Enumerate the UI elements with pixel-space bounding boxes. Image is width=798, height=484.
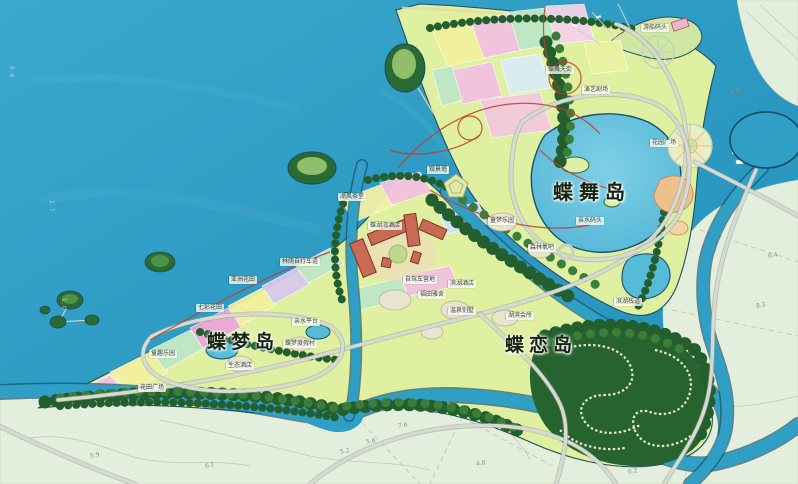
poi-label: 亲水平台 [292,318,320,326]
poi-label: 亚洲花田 [229,276,257,284]
map-canvas [0,0,798,484]
poi-label: 滨湖酒店 [448,280,476,288]
poi-label: 温泉别墅 [448,307,476,315]
poi-label: 童趣乐园 [149,350,177,358]
poi-label: 生态酒店 [226,362,254,370]
poi-label: 蝶湖湾酒店 [368,222,402,230]
master-plan-map: 蝶舞岛 蝶梦岛 蝶恋岛 凉风茶堂 蝶湖湾酒店 自驾车营地 滨湖酒店 林荫自行车道… [0,0,798,484]
poi-label: 福田雅舍 [418,291,446,299]
poi-label: 观景塔 [427,166,449,174]
poi-label: 游船码头 [641,24,669,32]
poi-label: 蝶舞天街 [546,66,574,74]
poi-label: 七彩花田 [196,304,224,312]
island-label-dielian: 蝶恋岛 [505,330,577,357]
poi-label: 林荫自行车道 [280,258,320,266]
water-depth-mark: 1.7 [48,200,55,213]
poi-label: 演艺剧场 [582,86,610,94]
poi-label: 森林氧吧 [528,244,556,252]
poi-label: 童梦乐园 [488,217,516,225]
poi-label: 凉风茶堂 [338,193,366,201]
poi-label: 滨湖栈道 [614,298,642,306]
poi-label: 花田广场 [138,384,166,392]
poi-label: 湖滨会所 [506,312,534,320]
poi-label: 花园广场 [650,139,678,147]
poi-label: 亲水码头 [576,217,604,225]
water-depth-mark: 0.8 [8,66,15,79]
poi-label: 蝶梦度假村 [283,340,317,348]
water-depth-mark: 1.0 [60,298,67,311]
island-label-diemeng: 蝶梦岛 [207,327,279,354]
poi-label: 自驾车营地 [403,276,437,284]
island-label-diewu: 蝶舞岛 [553,176,631,205]
